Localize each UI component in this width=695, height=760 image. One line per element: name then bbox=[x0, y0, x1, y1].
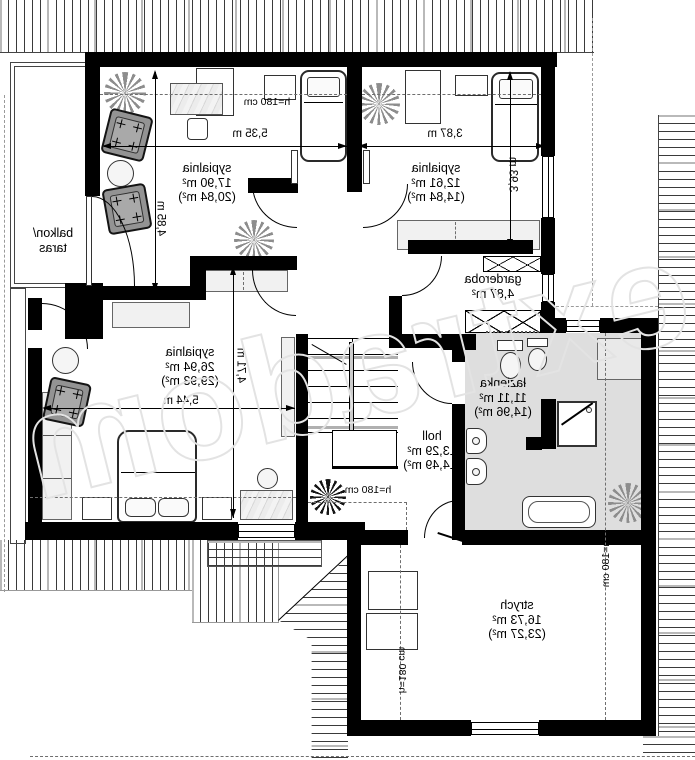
bed-pillow bbox=[125, 498, 156, 517]
wall bbox=[28, 298, 42, 330]
room-area: 4,87 m² bbox=[443, 287, 543, 302]
room-label-master-bedroom: sypialnia 26,94 m² (29,93 m²) bbox=[140, 345, 240, 389]
room-area-gross: (14,96 m²) bbox=[453, 405, 553, 420]
door-leaf bbox=[363, 150, 370, 184]
dim-label: 5,35 m bbox=[215, 128, 285, 141]
bed-pillow bbox=[499, 79, 533, 99]
dim-label: 3,93 m bbox=[506, 145, 519, 205]
arrowhead bbox=[152, 283, 158, 292]
room-name: łazienka bbox=[453, 376, 553, 391]
room-area-gross: (14,49 m²) bbox=[382, 458, 482, 473]
dimension-line bbox=[104, 146, 347, 147]
wall bbox=[85, 52, 100, 196]
clearance-line bbox=[100, 94, 347, 95]
storage-box bbox=[366, 613, 418, 650]
wardrobe-divider bbox=[243, 272, 244, 290]
wall bbox=[347, 720, 471, 736]
bed-line bbox=[495, 104, 537, 105]
arrowhead bbox=[358, 143, 367, 149]
door-swing-arc bbox=[412, 362, 452, 404]
desk bbox=[405, 70, 441, 124]
dim-label: 4,85 m bbox=[154, 189, 167, 249]
side-table-round bbox=[107, 160, 134, 187]
armchair bbox=[100, 107, 154, 162]
dim-label: 5,44 m bbox=[146, 395, 216, 408]
clearance-line bbox=[406, 502, 407, 530]
bed-double bbox=[117, 430, 197, 523]
wall bbox=[600, 318, 658, 333]
nightstand bbox=[202, 497, 232, 520]
nightstand bbox=[82, 497, 112, 520]
wardrobe-crossed bbox=[465, 310, 541, 333]
door-swing-arc bbox=[402, 256, 442, 296]
roof-hatch-right bbox=[658, 115, 695, 736]
floor-plan: sypialnia 17,90 m² (20,84 m²) h=180 cm 5… bbox=[0, 0, 695, 760]
bed-line bbox=[121, 472, 195, 473]
room-area: 11,11 m² bbox=[453, 391, 553, 406]
room-name: sypialnia bbox=[140, 345, 240, 360]
room-area-gross: (29,93 m²) bbox=[140, 374, 240, 389]
room-area: 13,29 m² bbox=[382, 444, 482, 459]
wall bbox=[541, 52, 555, 156]
room-name2: taras bbox=[18, 241, 88, 256]
roof-hatch-skylight bbox=[207, 540, 322, 567]
arrowhead bbox=[507, 239, 513, 248]
room-area: 17,90 m² bbox=[157, 176, 257, 191]
arrowhead bbox=[286, 405, 295, 411]
clearance-line bbox=[30, 497, 296, 498]
room-area-gross: (14,84 m²) bbox=[386, 190, 486, 205]
wall bbox=[408, 240, 533, 254]
wall bbox=[347, 530, 408, 545]
plant-icon bbox=[358, 83, 400, 125]
side-table-round bbox=[52, 347, 79, 374]
bidet-bowl bbox=[528, 348, 547, 371]
eave-line-left bbox=[4, 95, 5, 592]
wall bbox=[389, 296, 402, 334]
stool-round bbox=[257, 468, 278, 489]
shower-head bbox=[586, 407, 592, 413]
room-label-hall: holl 13,29 m² (14,49 m²) bbox=[382, 429, 482, 473]
window bbox=[566, 320, 600, 332]
wall bbox=[539, 720, 656, 736]
room-name: garderoba bbox=[443, 272, 543, 287]
wall bbox=[347, 545, 361, 722]
room-label-balcony: balkon/ taras bbox=[18, 226, 88, 255]
clearance-label: h=180 cm bbox=[237, 96, 297, 108]
dim-label: 4,71 m bbox=[234, 336, 247, 396]
garderoba-open-edge bbox=[486, 331, 542, 333]
wall bbox=[85, 52, 557, 67]
toilet-bowl bbox=[500, 352, 521, 379]
armchair bbox=[42, 376, 92, 428]
bathtub-inner bbox=[528, 501, 590, 523]
wall bbox=[190, 256, 297, 270]
door-leaf bbox=[291, 150, 298, 184]
bed-pillow bbox=[158, 498, 189, 517]
arrowhead bbox=[338, 143, 347, 149]
wall bbox=[389, 334, 447, 348]
eave-line-right bbox=[592, 18, 593, 306]
desk-chair bbox=[187, 118, 208, 140]
dimension-line bbox=[155, 72, 156, 292]
door-swing-arc bbox=[252, 270, 296, 316]
wardrobe bbox=[112, 302, 190, 328]
clearance-line bbox=[308, 502, 407, 503]
shelf bbox=[281, 337, 295, 437]
shower-wall bbox=[526, 437, 542, 450]
desk-wood bbox=[240, 490, 293, 520]
window bbox=[542, 274, 554, 302]
wall bbox=[347, 52, 362, 192]
room-label-attic: strych 16,73 m² (23,27 m²) bbox=[467, 598, 567, 642]
room-name: holl bbox=[382, 429, 482, 444]
bed-line bbox=[304, 102, 343, 103]
arrowhead bbox=[507, 71, 513, 80]
arrowhead bbox=[230, 509, 236, 518]
room-area: 12,61 m² bbox=[386, 176, 486, 191]
roof-hatch-bottom-left-a bbox=[0, 540, 192, 591]
arrowhead bbox=[102, 143, 111, 149]
wall bbox=[541, 302, 555, 319]
wall bbox=[540, 318, 566, 333]
room-label-bathroom: łazienka 11,11 m² (14,96 m²) bbox=[453, 376, 553, 420]
storage-box bbox=[368, 571, 418, 610]
eave-line-bottom bbox=[30, 756, 695, 757]
room-area: 16,73 m² bbox=[467, 613, 567, 628]
toilet-tank bbox=[497, 340, 523, 351]
clearance-label: h=180 cm bbox=[600, 536, 612, 592]
terrace-strip bbox=[10, 288, 26, 544]
arrowhead bbox=[536, 143, 545, 149]
window bbox=[471, 722, 539, 735]
arrowhead bbox=[230, 266, 236, 275]
wardrobe-crossed bbox=[483, 256, 541, 272]
wall bbox=[25, 522, 238, 540]
wall bbox=[462, 530, 656, 545]
window bbox=[238, 524, 295, 538]
room-label-bedroom-top-left: sypialnia 17,90 m² (20,84 m²) bbox=[157, 161, 257, 205]
clearance-line bbox=[605, 333, 606, 720]
wall bbox=[28, 348, 42, 522]
clearance-line bbox=[362, 94, 541, 95]
clearance-label: h=180 cm bbox=[338, 484, 398, 496]
room-name: sypialnia bbox=[386, 161, 486, 176]
wall bbox=[541, 218, 555, 252]
room-name: sypialnia bbox=[157, 161, 257, 176]
nightstand bbox=[455, 75, 488, 96]
bidet-base bbox=[527, 338, 548, 347]
room-label-garderoba: garderoba 4,87 m² bbox=[443, 272, 543, 301]
room-name: balkon/ bbox=[18, 226, 88, 241]
arrowhead bbox=[152, 70, 158, 79]
room-label-bedroom-top-right: sypialnia 12,61 m² (14,84 m²) bbox=[386, 161, 486, 205]
desk-wood bbox=[170, 83, 223, 115]
room-area-gross: (20,84 m²) bbox=[157, 190, 257, 205]
roof-hatch-top bbox=[0, 0, 594, 53]
room-name: strych bbox=[467, 598, 567, 613]
window bbox=[542, 156, 554, 218]
room-area-gross: (23,27 m²) bbox=[467, 627, 567, 642]
plant-icon bbox=[104, 72, 146, 114]
roof-hatch-bottom-right bbox=[643, 736, 695, 756]
eave-line-right-h bbox=[556, 306, 658, 307]
dim-label: 3,87 m bbox=[410, 128, 480, 141]
wall bbox=[296, 334, 308, 522]
clearance-label: h=180 cm bbox=[396, 642, 408, 698]
wall bbox=[452, 334, 465, 362]
plant-icon bbox=[234, 220, 274, 260]
room-area: 26,94 m² bbox=[140, 360, 240, 375]
wall bbox=[541, 252, 555, 274]
arrowhead bbox=[42, 405, 51, 411]
